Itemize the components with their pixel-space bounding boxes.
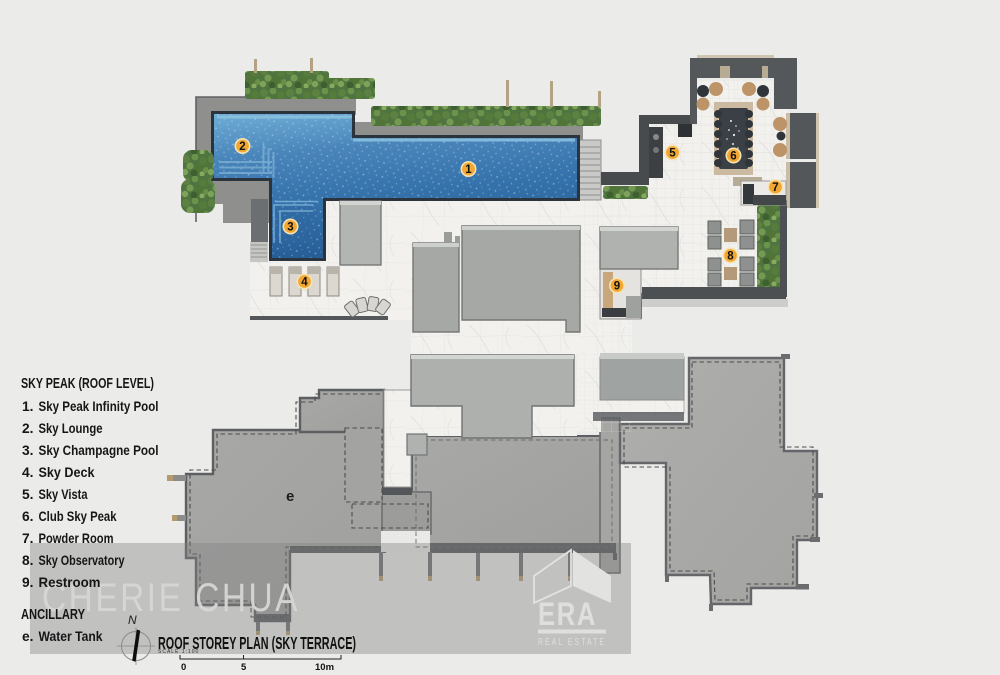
svg-text:5: 5 [669,148,676,160]
svg-text:Sky Champagne Pool: Sky Champagne Pool [39,443,159,458]
svg-text:3.: 3. [22,443,34,458]
svg-text:Club Sky Peak: Club Sky Peak [39,509,117,524]
svg-text:10m: 10m [315,662,334,673]
svg-text:4: 4 [301,277,308,289]
svg-text:N: N [128,613,137,627]
svg-text:Powder Room: Powder Room [39,531,114,546]
svg-text:6: 6 [730,151,736,163]
svg-text:Sky Lounge: Sky Lounge [39,421,103,436]
svg-text:e.: e. [22,629,34,644]
svg-text:Restroom: Restroom [39,575,101,590]
svg-text:1.: 1. [22,399,34,414]
svg-text:6.: 6. [22,509,34,524]
svg-text:ANCILLARY: ANCILLARY [21,607,85,623]
svg-text:9.: 9. [22,575,34,590]
svg-text:8: 8 [727,251,734,263]
svg-text:7.: 7. [22,531,34,546]
svg-text:Sky Vista: Sky Vista [39,487,88,502]
svg-text:Sky Deck: Sky Deck [39,465,95,480]
svg-text:SCALE 1:100: SCALE 1:100 [158,649,199,655]
svg-text:4.: 4. [22,465,34,480]
svg-text:2: 2 [239,141,245,153]
svg-text:REAL ESTATE: REAL ESTATE [538,637,606,648]
svg-text:SKY PEAK (ROOF LEVEL): SKY PEAK (ROOF LEVEL) [21,376,154,392]
svg-text:3: 3 [287,222,293,234]
svg-text:ERA: ERA [538,596,597,632]
svg-text:5: 5 [241,662,247,673]
svg-text:e: e [286,488,294,505]
svg-text:2.: 2. [22,421,34,436]
svg-text:7: 7 [772,182,778,194]
svg-text:8.: 8. [22,553,34,568]
svg-text:9: 9 [614,281,620,293]
svg-text:5.: 5. [22,487,34,502]
svg-text:Sky Observatory: Sky Observatory [39,553,125,568]
svg-text:0: 0 [181,662,186,673]
svg-text:Sky Peak Infinity Pool: Sky Peak Infinity Pool [39,399,159,414]
svg-text:Water Tank: Water Tank [39,629,103,644]
svg-text:1: 1 [465,164,472,176]
